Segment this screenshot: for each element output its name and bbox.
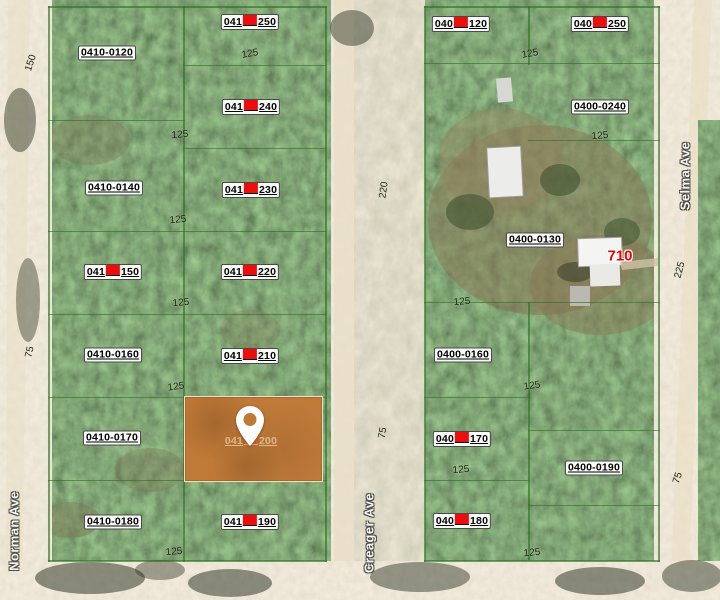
parcel-boundary-line: [528, 140, 660, 141]
redaction-box-icon: [455, 514, 469, 525]
parcel-label[interactable]: 0410-0140: [85, 181, 143, 196]
parcel-label[interactable]: 041220: [221, 264, 279, 280]
parcel-boundary-line: [48, 6, 50, 562]
redaction-box-icon: [593, 17, 607, 28]
parcel-boundary-line: [658, 6, 660, 562]
redaction-box-icon: [454, 17, 468, 28]
parcel-boundary-line: [424, 6, 426, 562]
parcel-label[interactable]: 0410-0180: [84, 515, 142, 530]
parcel-boundary-line: [528, 6, 530, 65]
parcel-boundary-line: [424, 302, 660, 303]
parcel-map[interactable]: 0410-01200412500412400410-01400412300411…: [0, 0, 720, 600]
parcel-label[interactable]: 0410-0120: [78, 46, 136, 61]
parcel-boundary-line: [424, 480, 530, 481]
parcel-label[interactable]: 0400-0130: [506, 233, 564, 248]
pin-hole: [244, 413, 257, 426]
parcel-label[interactable]: 041190: [221, 514, 279, 530]
parcel-label[interactable]: 041150: [84, 264, 142, 280]
parcel-label[interactable]: 041250: [221, 14, 279, 30]
redaction-box-icon: [243, 349, 257, 360]
parcel-label[interactable]: 0400-0240: [571, 100, 629, 115]
redaction-box-icon: [106, 265, 120, 276]
parcel-boundary-line: [183, 148, 327, 149]
parcel-boundary-line: [48, 120, 185, 121]
parcel-label[interactable]: 040250: [571, 16, 629, 32]
parcel-boundary-line: [48, 231, 327, 232]
redaction-box-icon: [243, 265, 257, 276]
parcel-boundary-line: [424, 6, 660, 8]
parcel-boundary-line: [48, 560, 327, 562]
parcel-boundary-line: [424, 63, 660, 64]
parcel-boundary-line: [528, 505, 660, 506]
redaction-box-icon: [244, 183, 258, 194]
parcel-label[interactable]: 040120: [432, 16, 490, 32]
parcel-label[interactable]: 0410-0160: [84, 348, 142, 363]
parcel-label[interactable]: 040170: [433, 431, 491, 447]
parcel-boundary-line: [528, 302, 530, 560]
parcel-boundary-line: [528, 430, 660, 431]
parcel-boundary-line: [183, 65, 327, 66]
parcel-label[interactable]: 041240: [222, 99, 280, 115]
redaction-box-icon: [455, 432, 469, 443]
redaction-box-icon: [243, 515, 257, 526]
house-number-label: 710: [607, 248, 632, 265]
parcel-label[interactable]: 0400-0160: [434, 348, 492, 363]
parcel-boundary-line: [48, 6, 327, 8]
location-pin-icon[interactable]: [233, 404, 267, 448]
parcel-label[interactable]: 041210: [221, 348, 279, 364]
parcel-label[interactable]: 0410-0170: [83, 431, 141, 446]
redaction-box-icon: [244, 100, 258, 111]
parcel-lines-layer: [0, 0, 720, 600]
parcel-label[interactable]: 040180: [433, 513, 491, 529]
parcel-label[interactable]: 041230: [222, 182, 280, 198]
parcel-boundary-line: [48, 314, 327, 315]
redaction-box-icon: [243, 15, 257, 26]
parcel-boundary-line: [325, 6, 327, 562]
parcel-label[interactable]: 0400-0190: [565, 461, 623, 476]
parcel-boundary-line: [424, 560, 660, 562]
parcel-boundary-line: [424, 397, 530, 398]
